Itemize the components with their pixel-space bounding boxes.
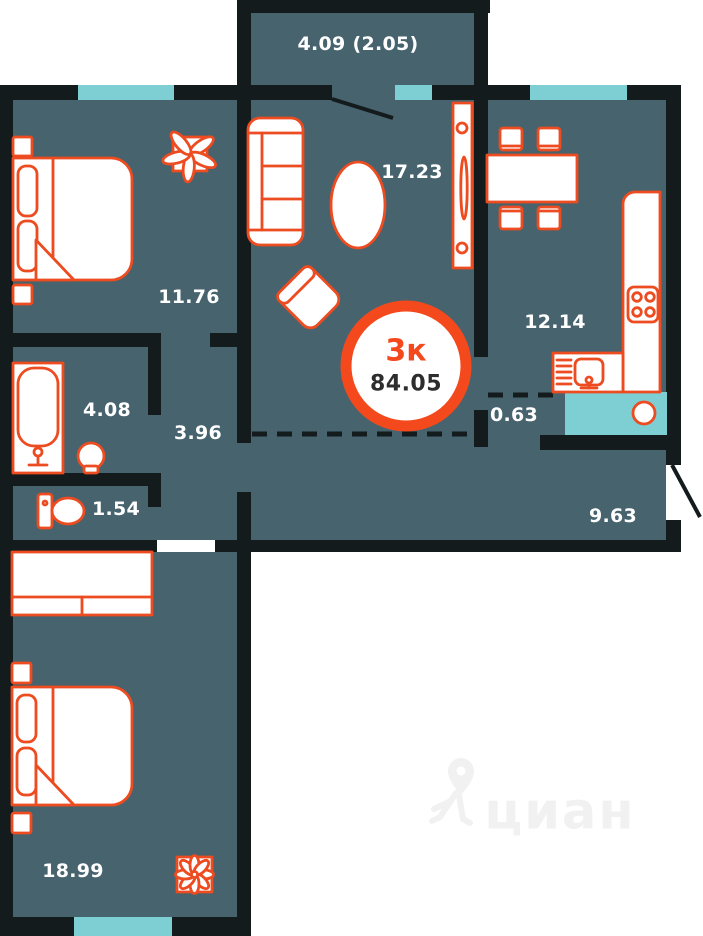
- bathtub-icon: [13, 363, 63, 473]
- room-label-balcony: 4.09 (2.05): [297, 33, 418, 55]
- room-label-bedroom-top: 11.76: [158, 286, 220, 308]
- dining-table-icon: [487, 155, 577, 202]
- sink-icon: [553, 353, 623, 392]
- entrance-door-leaf: [672, 465, 700, 517]
- wardrobe-mirror-icon: [453, 103, 472, 268]
- window-bedroom-bottom: [74, 917, 172, 936]
- room-label-hallway: 3.96: [174, 422, 222, 444]
- window-bedroom-top: [78, 85, 174, 100]
- room-label-kitchen: 12.14: [524, 311, 586, 333]
- badge-rooms-count: 3к: [385, 334, 426, 369]
- room-label-bathroom: 4.08: [83, 399, 131, 421]
- cian-logo-icon: [432, 758, 474, 823]
- floor-plan: 4.09 (2.05) 17.23 11.76 12.14 4.08 3.96 …: [0, 0, 703, 936]
- flower-plant-icon: [176, 856, 214, 894]
- room-label-toilet: 1.54: [92, 498, 140, 520]
- badge-total-area: 84.05: [370, 372, 442, 397]
- wardrobe-icon: [12, 552, 152, 615]
- nightstand-icon: [13, 285, 32, 304]
- nightstand-icon: [13, 137, 32, 156]
- double-bed-icon: [12, 687, 132, 805]
- room-label-corridor: 9.63: [589, 505, 637, 527]
- washer-icon: [633, 402, 655, 424]
- stove-icon: [628, 287, 658, 322]
- room-label-niche: 0.63: [490, 404, 538, 426]
- window-kitchen: [530, 85, 627, 100]
- rug-icon: [331, 162, 385, 248]
- watermark-brand: циан: [484, 783, 635, 842]
- toilet-furniture: [38, 494, 84, 528]
- nightstand-icon: [12, 663, 31, 683]
- double-bed-icon: [13, 158, 132, 280]
- toilet-icon: [38, 494, 84, 528]
- sofa-icon: [248, 118, 303, 245]
- window-balcony: [395, 85, 432, 100]
- room-label-living-room: 17.23: [381, 161, 443, 183]
- nightstand-icon: [12, 813, 31, 833]
- room-label-bedroom-bottom: 18.99: [42, 860, 104, 882]
